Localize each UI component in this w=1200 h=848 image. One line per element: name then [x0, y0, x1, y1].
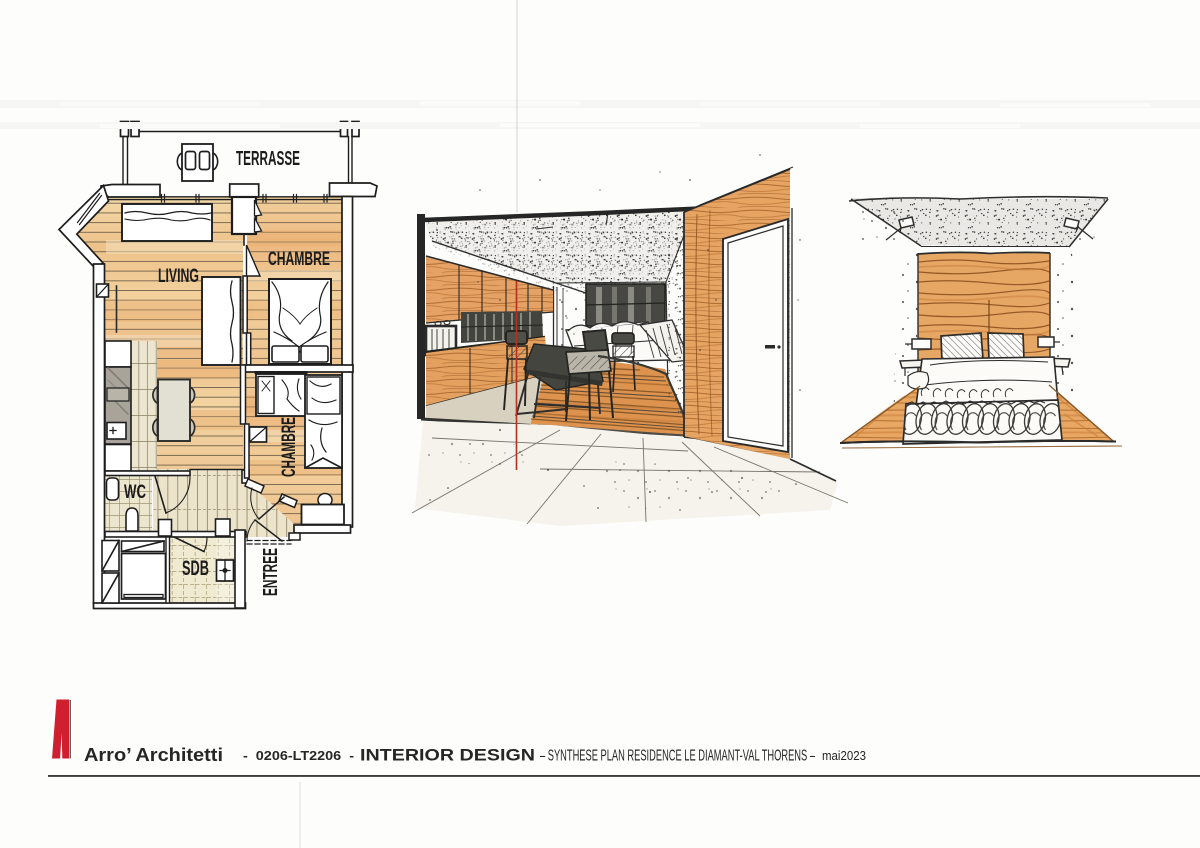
svg-text:INTERIOR DESIGN: INTERIOR DESIGN: [360, 747, 535, 765]
svg-text:mai2023: mai2023: [822, 749, 866, 763]
svg-text:WC: WC: [124, 482, 146, 503]
svg-text:ENTREE: ENTREE: [260, 548, 282, 596]
svg-text:– SYNTHESE PLAN RESIDENCE LE D: – SYNTHESE PLAN RESIDENCE LE DIAMANT-VAL…: [540, 748, 815, 765]
svg-text:LIVING: LIVING: [158, 266, 199, 287]
svg-text:CHAMBRE: CHAMBRE: [268, 249, 330, 270]
svg-text:TERRASSE: TERRASSE: [236, 147, 300, 170]
svg-text:CHAMBRE: CHAMBRE: [279, 417, 300, 477]
svg-text:Arro’ Architetti: Arro’ Architetti: [84, 745, 223, 765]
svg-text:SDB: SDB: [182, 557, 209, 580]
svg-text:- 0206-LT2206 -: - 0206-LT2206 -: [243, 748, 354, 763]
